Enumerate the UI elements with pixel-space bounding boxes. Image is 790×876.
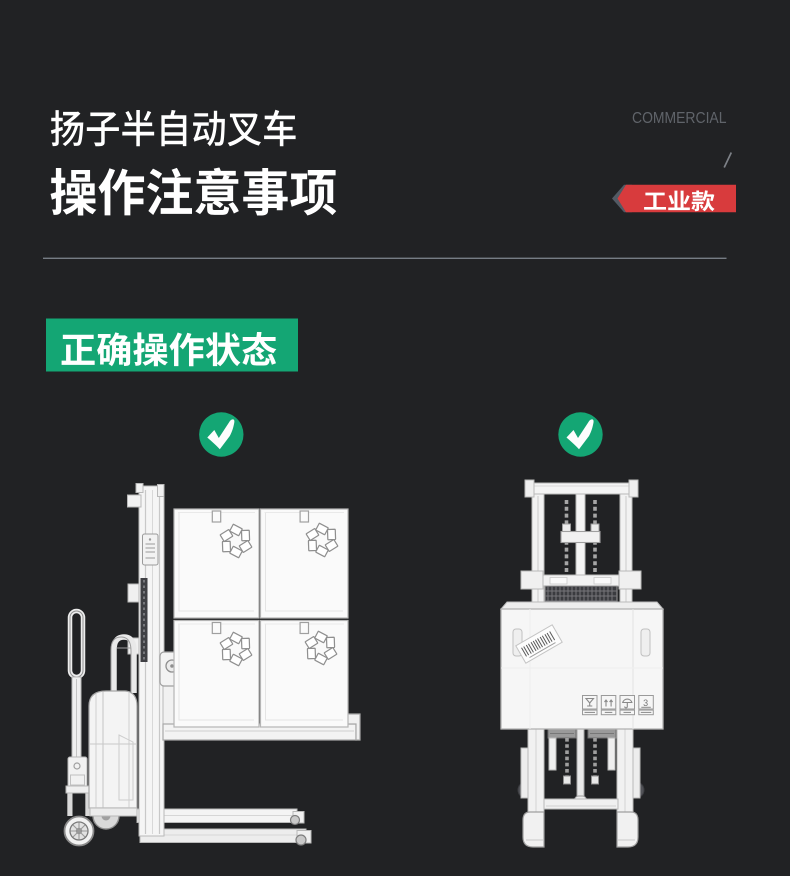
svg-text:3: 3 — [643, 698, 648, 708]
svg-text:COMMERCIAL: COMMERCIAL — [632, 110, 727, 127]
